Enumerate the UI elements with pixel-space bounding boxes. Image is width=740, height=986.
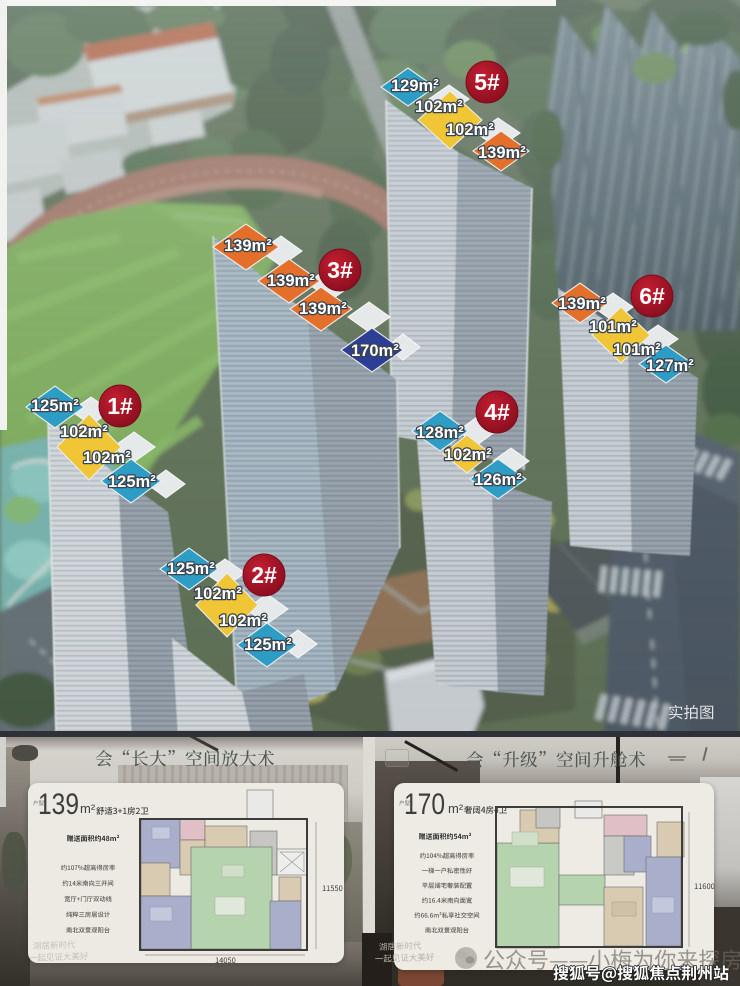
svg-text:139m²: 139m² — [267, 272, 315, 290]
svg-text:6#: 6# — [639, 283, 665, 309]
svg-text:139m²: 139m² — [224, 237, 272, 255]
svg-text:129m²: 129m² — [391, 77, 439, 95]
svg-text:4#: 4# — [484, 399, 510, 425]
svg-text:102m²: 102m² — [60, 423, 108, 441]
svg-text:170: 170 — [404, 788, 445, 821]
svg-text:m²: m² — [80, 801, 96, 816]
svg-text:128m²: 128m² — [416, 424, 464, 442]
svg-text:127m²: 127m² — [646, 357, 694, 375]
svg-text:m²: m² — [448, 801, 464, 816]
svg-text:139m²: 139m² — [558, 295, 606, 313]
svg-text:125m²: 125m² — [244, 636, 292, 654]
svg-text:126m²: 126m² — [474, 471, 522, 489]
svg-text:125m²: 125m² — [31, 397, 79, 415]
svg-text:139: 139 — [38, 788, 79, 821]
svg-text:102m²: 102m² — [219, 612, 267, 630]
svg-text:102m²: 102m² — [444, 446, 492, 464]
svg-text:101m²: 101m² — [589, 318, 637, 336]
svg-text:2#: 2# — [251, 562, 277, 588]
svg-text:102m²: 102m² — [83, 449, 131, 467]
svg-text:102m²: 102m² — [415, 98, 463, 116]
svg-text:5#: 5# — [474, 69, 500, 95]
svg-text:3#: 3# — [327, 257, 353, 283]
svg-text:102m²: 102m² — [194, 585, 242, 603]
svg-text:139m²: 139m² — [299, 300, 347, 318]
svg-text:1#: 1# — [107, 393, 133, 419]
svg-text:102m²: 102m² — [446, 121, 494, 139]
svg-text:170m²: 170m² — [351, 342, 399, 360]
svg-text:139m²: 139m² — [478, 144, 526, 162]
svg-text:125m²: 125m² — [167, 560, 215, 578]
svg-text:125m²: 125m² — [108, 473, 156, 491]
